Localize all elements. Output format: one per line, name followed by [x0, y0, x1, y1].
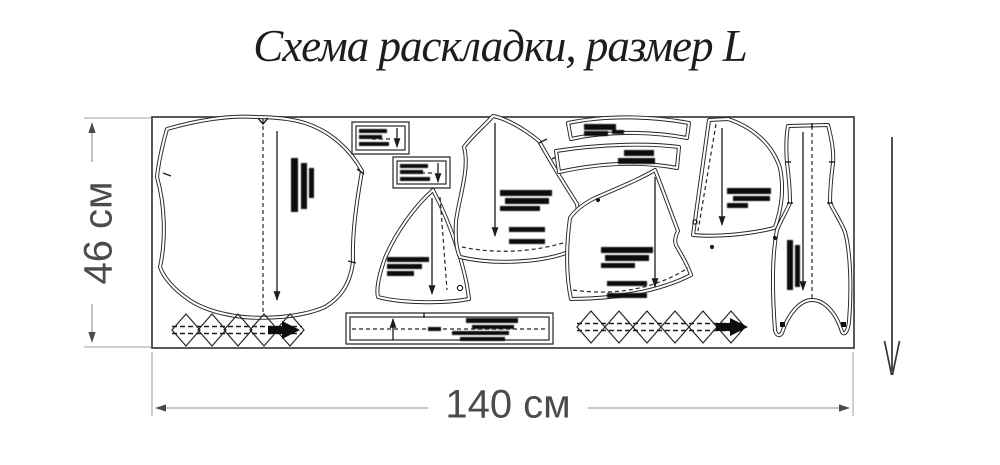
pattern-layout-page: Схема раскладки, размер L: [0, 0, 1000, 465]
grain-direction-arrow: [885, 137, 900, 375]
piece-back-panel: [157, 117, 364, 318]
fabric-width-dimension-label: 140 см: [445, 383, 570, 428]
fabric-height-dimension-label: 46 см: [77, 181, 122, 284]
